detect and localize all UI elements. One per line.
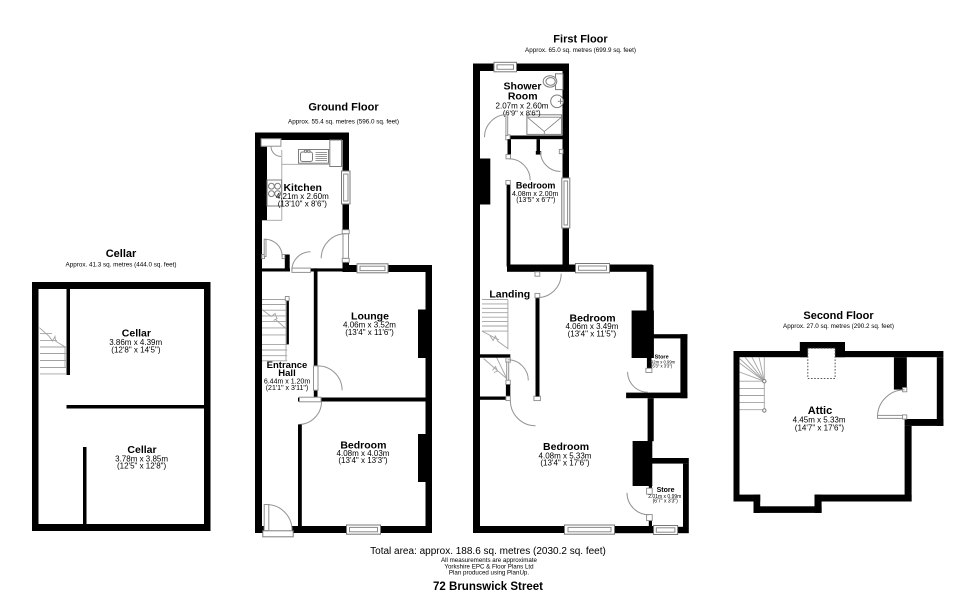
svg-text:Approx. 65.0 sq. metres (699.9: Approx. 65.0 sq. metres (699.9 sq. feet) — [525, 47, 636, 54]
svg-text:Hall: Hall — [278, 368, 295, 379]
svg-text:(6'7" x 3'3"): (6'7" x 3'3") — [653, 499, 679, 505]
svg-text:72 Brunswick Street: 72 Brunswick Street — [433, 581, 543, 593]
svg-text:Approx. 41.3 sq. metres (444.0: Approx. 41.3 sq. metres (444.0 sq. feet) — [66, 262, 177, 269]
svg-text:(14'7" x 17'6"): (14'7" x 17'6") — [795, 423, 845, 432]
svg-text:Total area: approx. 188.6 sq.: Total area: approx. 188.6 sq. metres (20… — [370, 546, 606, 557]
svg-text:Landing: Landing — [489, 289, 530, 301]
svg-text:(21'1" x 3'11"): (21'1" x 3'11") — [266, 385, 309, 392]
svg-text:(13'5" x 6'7"): (13'5" x 6'7") — [516, 197, 555, 204]
svg-text:(13'4" x 11'6"): (13'4" x 11'6") — [345, 328, 394, 337]
svg-text:Approx. 55.4 sq. metres (596.0: Approx. 55.4 sq. metres (596.0 sq. feet) — [288, 118, 399, 125]
svg-text:Approx. 27.0 sq. metres (290.2: Approx. 27.0 sq. metres (290.2 sq. feet) — [783, 323, 894, 330]
svg-text:(13'10" x 8'6"): (13'10" x 8'6") — [278, 200, 328, 209]
svg-text:(6'3" x 3'3"): (6'3" x 3'3") — [651, 364, 673, 369]
svg-text:First Floor: First Floor — [553, 34, 608, 46]
svg-text:(6'9" x 8'6"): (6'9" x 8'6") — [503, 108, 541, 117]
svg-text:Ground Floor: Ground Floor — [308, 102, 379, 114]
svg-text:Plan produced using PlanUp.: Plan produced using PlanUp. — [449, 570, 529, 577]
svg-text:Bedroom: Bedroom — [516, 181, 556, 191]
svg-text:(13'4" x 13'3"): (13'4" x 13'3") — [338, 456, 388, 465]
svg-text:(13'4" x 17'6"): (13'4" x 17'6") — [540, 459, 590, 468]
svg-text:(12'8" x 14'5"): (12'8" x 14'5") — [111, 346, 161, 355]
svg-text:(13'4" x 11'5"): (13'4" x 11'5") — [568, 330, 617, 339]
svg-text:Second Floor: Second Floor — [803, 310, 874, 322]
svg-text:Cellar: Cellar — [106, 248, 137, 260]
svg-text:(12'5" x 12'8"): (12'5" x 12'8") — [117, 462, 167, 471]
